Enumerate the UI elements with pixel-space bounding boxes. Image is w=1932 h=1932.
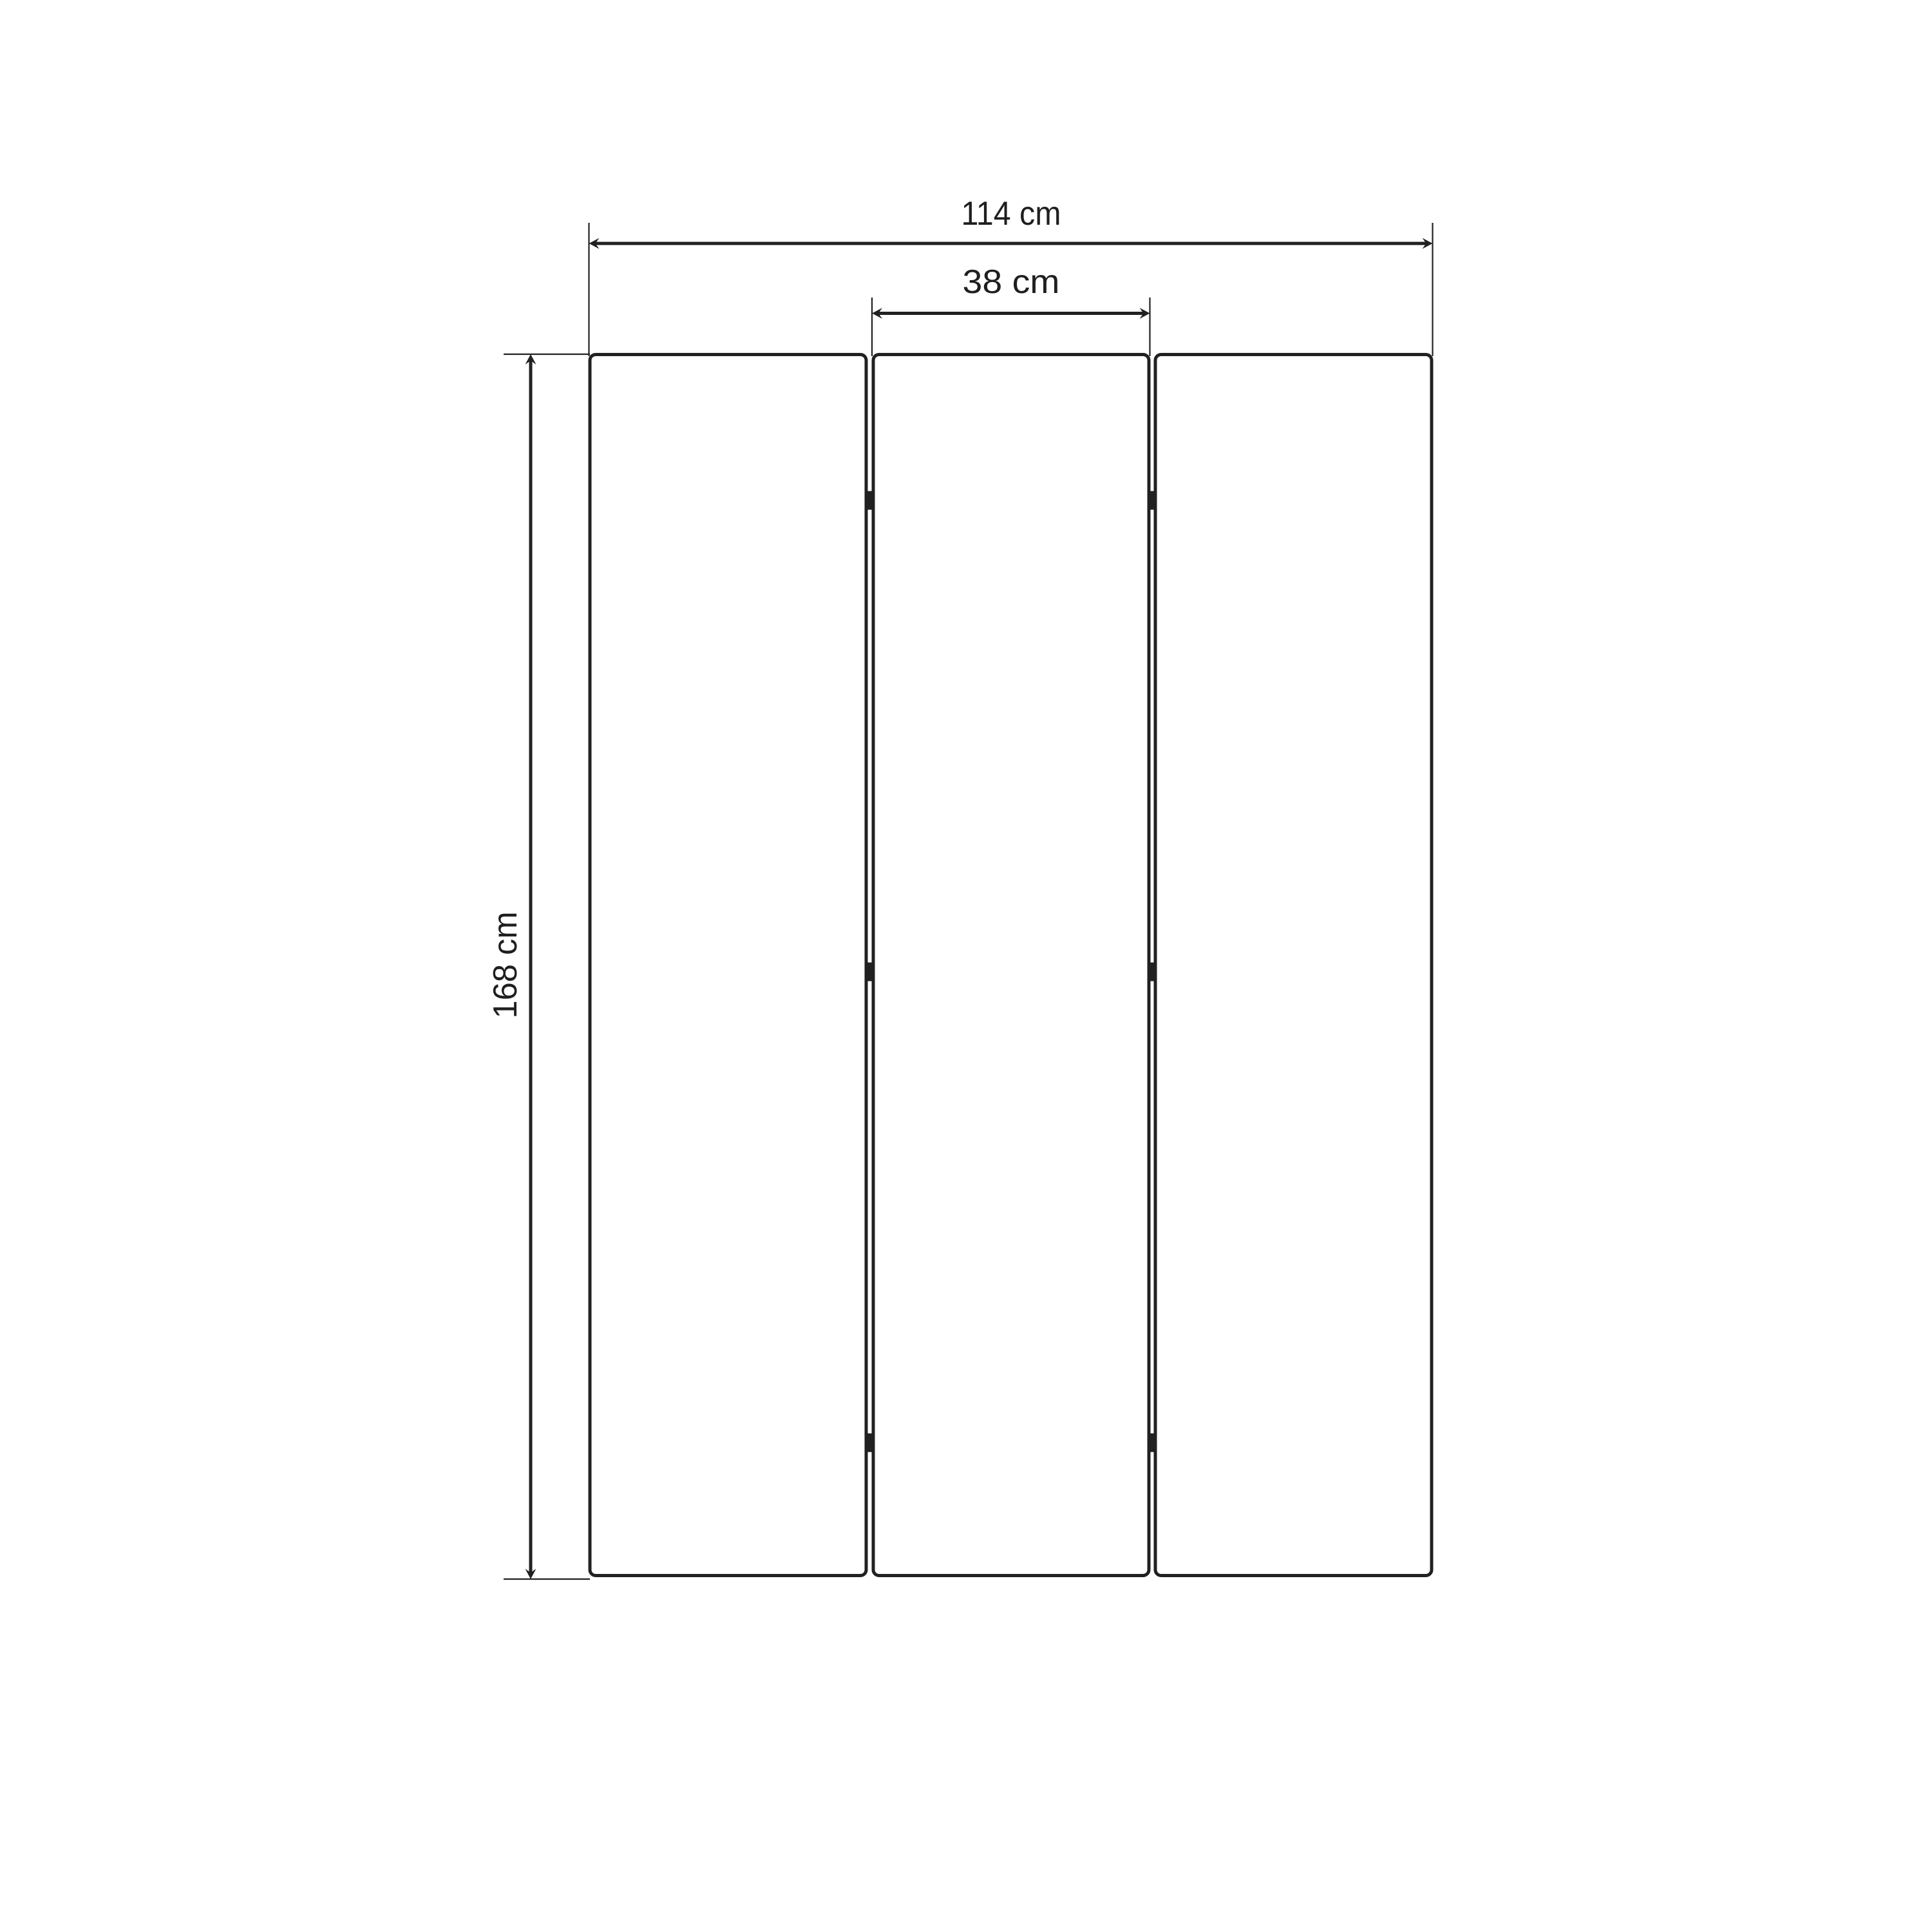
svg-text:168 cm: 168 cm <box>487 912 524 1019</box>
svg-text:38 cm: 38 cm <box>963 263 1060 301</box>
svg-text:114 cm: 114 cm <box>961 195 1061 232</box>
